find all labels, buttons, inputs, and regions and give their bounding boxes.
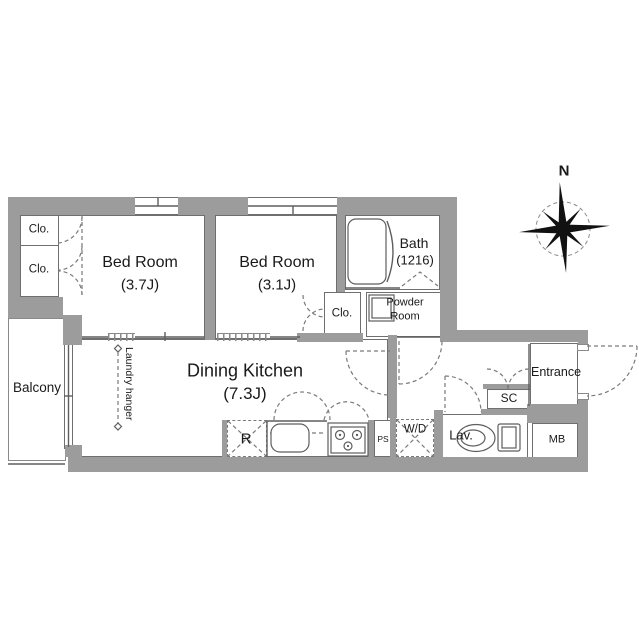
wall-balcony-pillar <box>63 315 82 345</box>
wall-sc-top <box>483 384 530 389</box>
bath-name: Bath <box>400 235 429 251</box>
wall-corridor-pillar <box>388 335 397 418</box>
wall-dk-corner <box>65 445 82 457</box>
bedroom1-size: (3.7J) <box>121 276 159 293</box>
shoe-closet-label: SC <box>501 392 518 406</box>
sliding-door-rail-bedroom1 <box>108 333 135 341</box>
powder-room-label-line1: Powder <box>386 297 423 310</box>
closet3-label: Clo. <box>332 307 352 320</box>
bedroom1-name: Bed Room <box>102 254 178 272</box>
balcony-label: Balcony <box>13 380 61 396</box>
window-bedroom2 <box>248 197 337 215</box>
bedroom2-name: Bed Room <box>239 254 315 272</box>
powder-room-door-arc <box>399 341 442 384</box>
laundry-hanger-label: Laundry hanger <box>123 347 135 421</box>
closet1-label: Clo. <box>29 223 49 236</box>
wall-top-left <box>8 197 135 215</box>
wall-under-closet3 <box>297 333 363 342</box>
window-bedroom1 <box>135 197 178 215</box>
powder-room-label-line2: Room <box>390 311 419 324</box>
compass-north-label: N <box>559 162 570 179</box>
wall-bedroom-divider <box>205 215 215 340</box>
entrance-door-arc <box>587 346 637 396</box>
refrigerator-label: R <box>241 430 252 447</box>
wall-left-block <box>8 297 63 318</box>
entrance-door-jamb-bottom <box>577 393 589 400</box>
washer-dryer-label: W/D <box>404 423 426 436</box>
balcony-window <box>64 343 73 449</box>
dining-kitchen-size: (7.3J) <box>223 384 266 404</box>
wall-top-mid <box>178 197 248 215</box>
entrance-door-jamb-top <box>577 344 589 351</box>
wall-wd-right <box>434 410 443 457</box>
wall-sc-bottom <box>481 409 530 415</box>
wall-top-right <box>337 197 457 215</box>
entrance-label: Entrance <box>531 365 581 379</box>
floor-plan: Clo. Clo. Bed Room (3.7J) Bed Room (3.1J… <box>0 0 639 640</box>
lavatory-door-arc <box>445 376 481 412</box>
wall-mid-right <box>440 330 588 342</box>
wall-stub-stove <box>368 420 374 457</box>
bedroom2-size: (3.1J) <box>258 276 296 293</box>
wall-bedroom2-right <box>337 215 345 292</box>
sliding-door-rail-bedroom2 <box>217 333 270 341</box>
lavatory-label: Lav. <box>449 429 473 444</box>
compass-icon <box>516 179 613 276</box>
meter-box-label: MB <box>549 434 566 447</box>
closet2-label: Clo. <box>29 263 49 276</box>
wall-left <box>8 197 20 300</box>
bath-size: (1216) <box>396 254 434 269</box>
wall-bottom <box>68 457 588 472</box>
wall-bath-right <box>440 215 457 332</box>
wall-entrance-bottom <box>527 404 588 423</box>
dining-kitchen-name: Dining Kitchen <box>187 361 303 382</box>
pipe-space-label: PS <box>377 435 388 445</box>
